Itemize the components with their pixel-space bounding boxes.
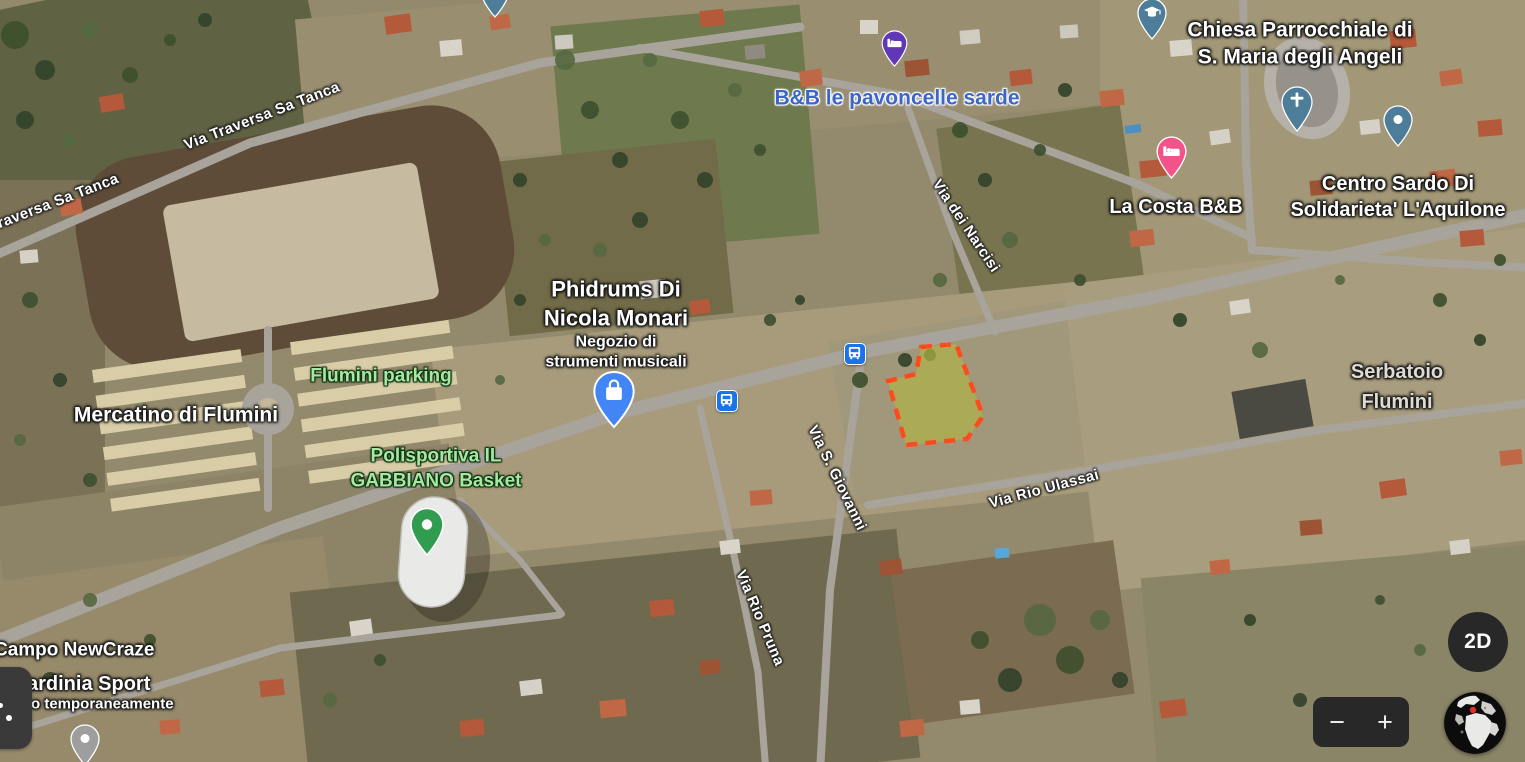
shopping-pin[interactable] — [592, 370, 636, 434]
church-pin[interactable] — [1281, 86, 1313, 137]
gray-pin[interactable] — [70, 724, 100, 762]
bus-icon — [845, 344, 864, 363]
christian-cross-icon — [1281, 86, 1313, 132]
poi-label-campo-newcraze[interactable]: Campo NewCraze — [0, 639, 155, 664]
place-pin-green[interactable] — [409, 507, 445, 562]
bus-icon — [717, 391, 736, 410]
poi-label-mercatino[interactable]: Mercatino di Flumini — [74, 401, 278, 428]
poi-label-sardinia-sport[interactable]: ardinia Sport — [27, 671, 150, 697]
green-map-pin-icon — [409, 507, 445, 557]
zoom-in-button[interactable]: + — [1361, 697, 1409, 747]
zoom-out-button[interactable]: − — [1313, 697, 1361, 747]
shopping-bag-icon — [592, 370, 636, 429]
poi-dot-pin[interactable] — [1383, 105, 1413, 152]
poi-label-line: S. Maria degli Angeli — [1198, 46, 1403, 69]
poi-label-subtitle: Negozio di — [544, 333, 688, 353]
badge-dot — [6, 715, 12, 721]
poi-label-phidrums[interactable]: Phidrums Di Nicola Monari Negozio di str… — [544, 275, 688, 372]
poi-label-centro-sardo[interactable]: Centro Sardo Di Solidarieta' L'Aquilone — [1290, 171, 1505, 223]
2d-view-toggle-button[interactable]: 2D — [1448, 612, 1508, 672]
poi-label-line: Nicola Monari — [544, 305, 688, 330]
poi-label-line: Flumini — [1361, 391, 1432, 413]
poi-label-line: Serbatoio — [1351, 361, 1443, 383]
poi-label-line: Solidarieta' L'Aquilone — [1290, 199, 1505, 221]
bed-icon — [881, 30, 908, 67]
bed-icon — [1156, 136, 1187, 179]
poi-label-bnb-pavoncelle[interactable]: B&B le pavoncelle sarde — [774, 84, 1019, 111]
lodging-pin-pink[interactable] — [1156, 136, 1187, 184]
school-pin[interactable] — [1137, 0, 1167, 45]
dot-pin-icon — [1383, 105, 1413, 147]
bus-stop-icon[interactable] — [844, 343, 866, 365]
map-pin-icon — [480, 0, 510, 18]
poi-label-polisportiva[interactable]: Polisportiva IL GABBIANO Basket — [350, 444, 521, 493]
brand-badge-pin[interactable] — [0, 667, 32, 749]
poi-label-chiesa-parrocchiale[interactable]: Chiesa Parrocchiale di S. Maria degli An… — [1187, 17, 1412, 72]
badge-dot — [0, 703, 3, 708]
poi-label-flumini-parking[interactable]: Flumini parking — [310, 365, 451, 390]
poi-label-line: Phidrums Di — [551, 276, 681, 301]
poi-label-line: Chiesa Parrocchiale di — [1187, 19, 1412, 42]
satellite-map-canvas[interactable]: Via Traversa Sa Tanca raversa Sa Tanca V… — [0, 0, 1525, 762]
lodging-pin-purple[interactable] — [881, 30, 908, 72]
status-label-closed-temporarily: o temporaneamente — [31, 694, 174, 714]
zoom-control[interactable]: − + — [1313, 697, 1409, 747]
poi-label-line: Polisportiva IL — [371, 445, 502, 466]
bus-stop-icon[interactable] — [716, 390, 738, 412]
graduation-cap-icon — [1137, 0, 1167, 40]
poi-label-line: Centro Sardo Di — [1322, 173, 1474, 195]
poi-label-serbatoio-flumini[interactable]: Serbatoio Flumini — [1351, 357, 1443, 417]
earth-globe-icon — [1444, 692, 1506, 754]
partial-pin-top[interactable] — [480, 0, 510, 23]
dot-pin-icon — [70, 724, 100, 762]
globe-button[interactable] — [1444, 692, 1506, 754]
poi-label-line: GABBIANO Basket — [350, 470, 521, 491]
poi-label-la-costa-bnb[interactable]: La Costa B&B — [1109, 194, 1242, 220]
